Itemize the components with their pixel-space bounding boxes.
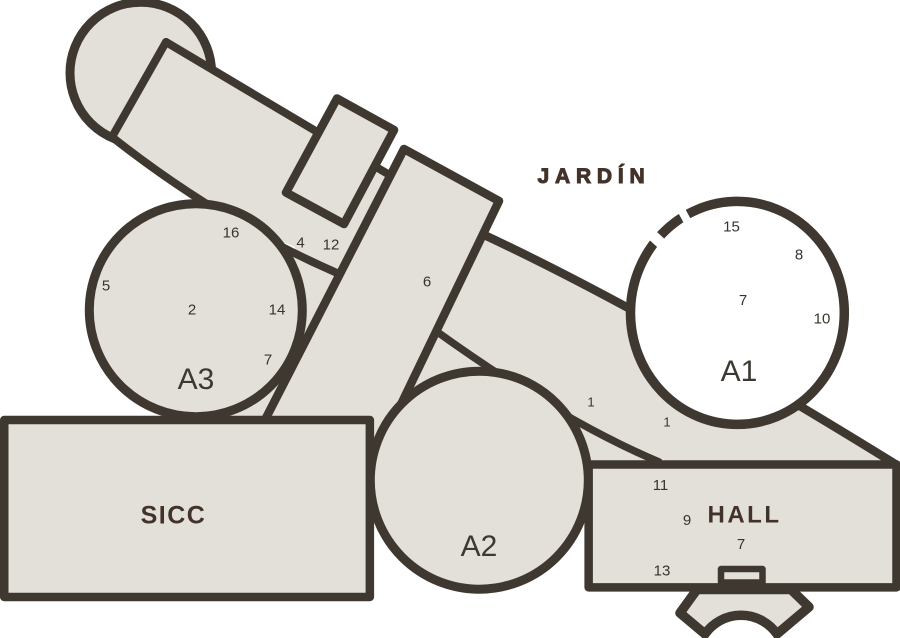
svg-text:8: 8 <box>795 247 803 264</box>
svg-text:HALL: HALL <box>708 502 782 529</box>
svg-text:7: 7 <box>264 352 272 369</box>
svg-text:7: 7 <box>739 292 747 309</box>
svg-text:13: 13 <box>654 563 671 580</box>
svg-text:1: 1 <box>663 415 670 430</box>
svg-text:4: 4 <box>296 235 304 252</box>
svg-text:10: 10 <box>814 311 831 328</box>
svg-text:A1: A1 <box>721 355 758 388</box>
svg-text:1: 1 <box>587 395 594 410</box>
svg-text:14: 14 <box>269 302 286 319</box>
svg-text:7: 7 <box>737 536 745 553</box>
svg-text:9: 9 <box>683 512 691 529</box>
svg-text:2: 2 <box>188 302 196 319</box>
svg-text:15: 15 <box>723 219 740 236</box>
svg-text:16: 16 <box>223 225 240 242</box>
svg-text:JARDÍN: JARDÍN <box>538 165 651 188</box>
svg-text:11: 11 <box>653 477 669 494</box>
svg-text:12: 12 <box>323 237 340 254</box>
svg-text:5: 5 <box>102 278 110 295</box>
svg-text:A2: A2 <box>461 530 498 563</box>
svg-text:SICC: SICC <box>141 502 207 530</box>
svg-text:A3: A3 <box>178 363 215 396</box>
svg-text:6: 6 <box>423 274 431 291</box>
